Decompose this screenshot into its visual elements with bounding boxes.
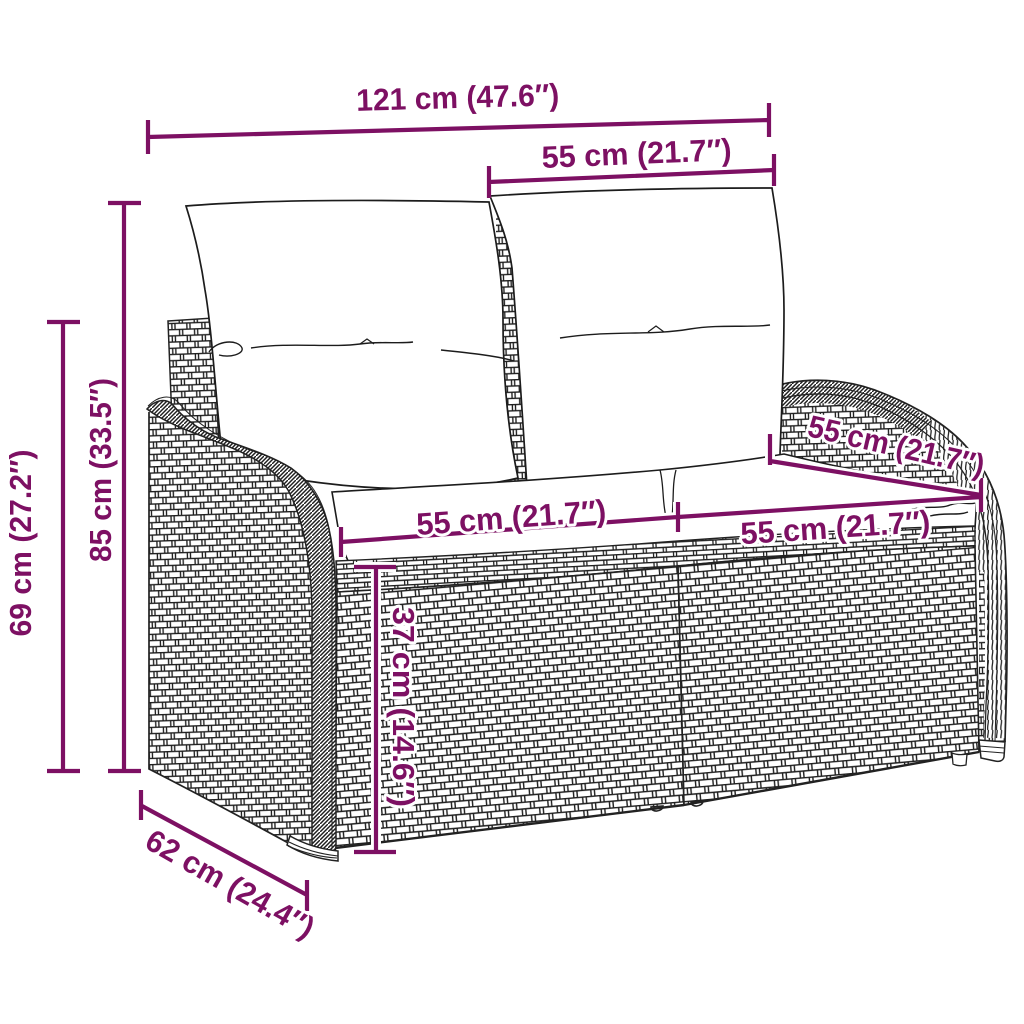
svg-text:85 cm (33.5″): 85 cm (33.5″) — [83, 378, 118, 562]
svg-text:37 cm (14.6″): 37 cm (14.6″) — [386, 607, 421, 807]
svg-text:121 cm (47.6″): 121 cm (47.6″) — [356, 77, 560, 118]
svg-text:55 cm (21.7″): 55 cm (21.7″) — [541, 132, 732, 175]
svg-text:69 cm (27.2″): 69 cm (27.2″) — [3, 450, 38, 637]
